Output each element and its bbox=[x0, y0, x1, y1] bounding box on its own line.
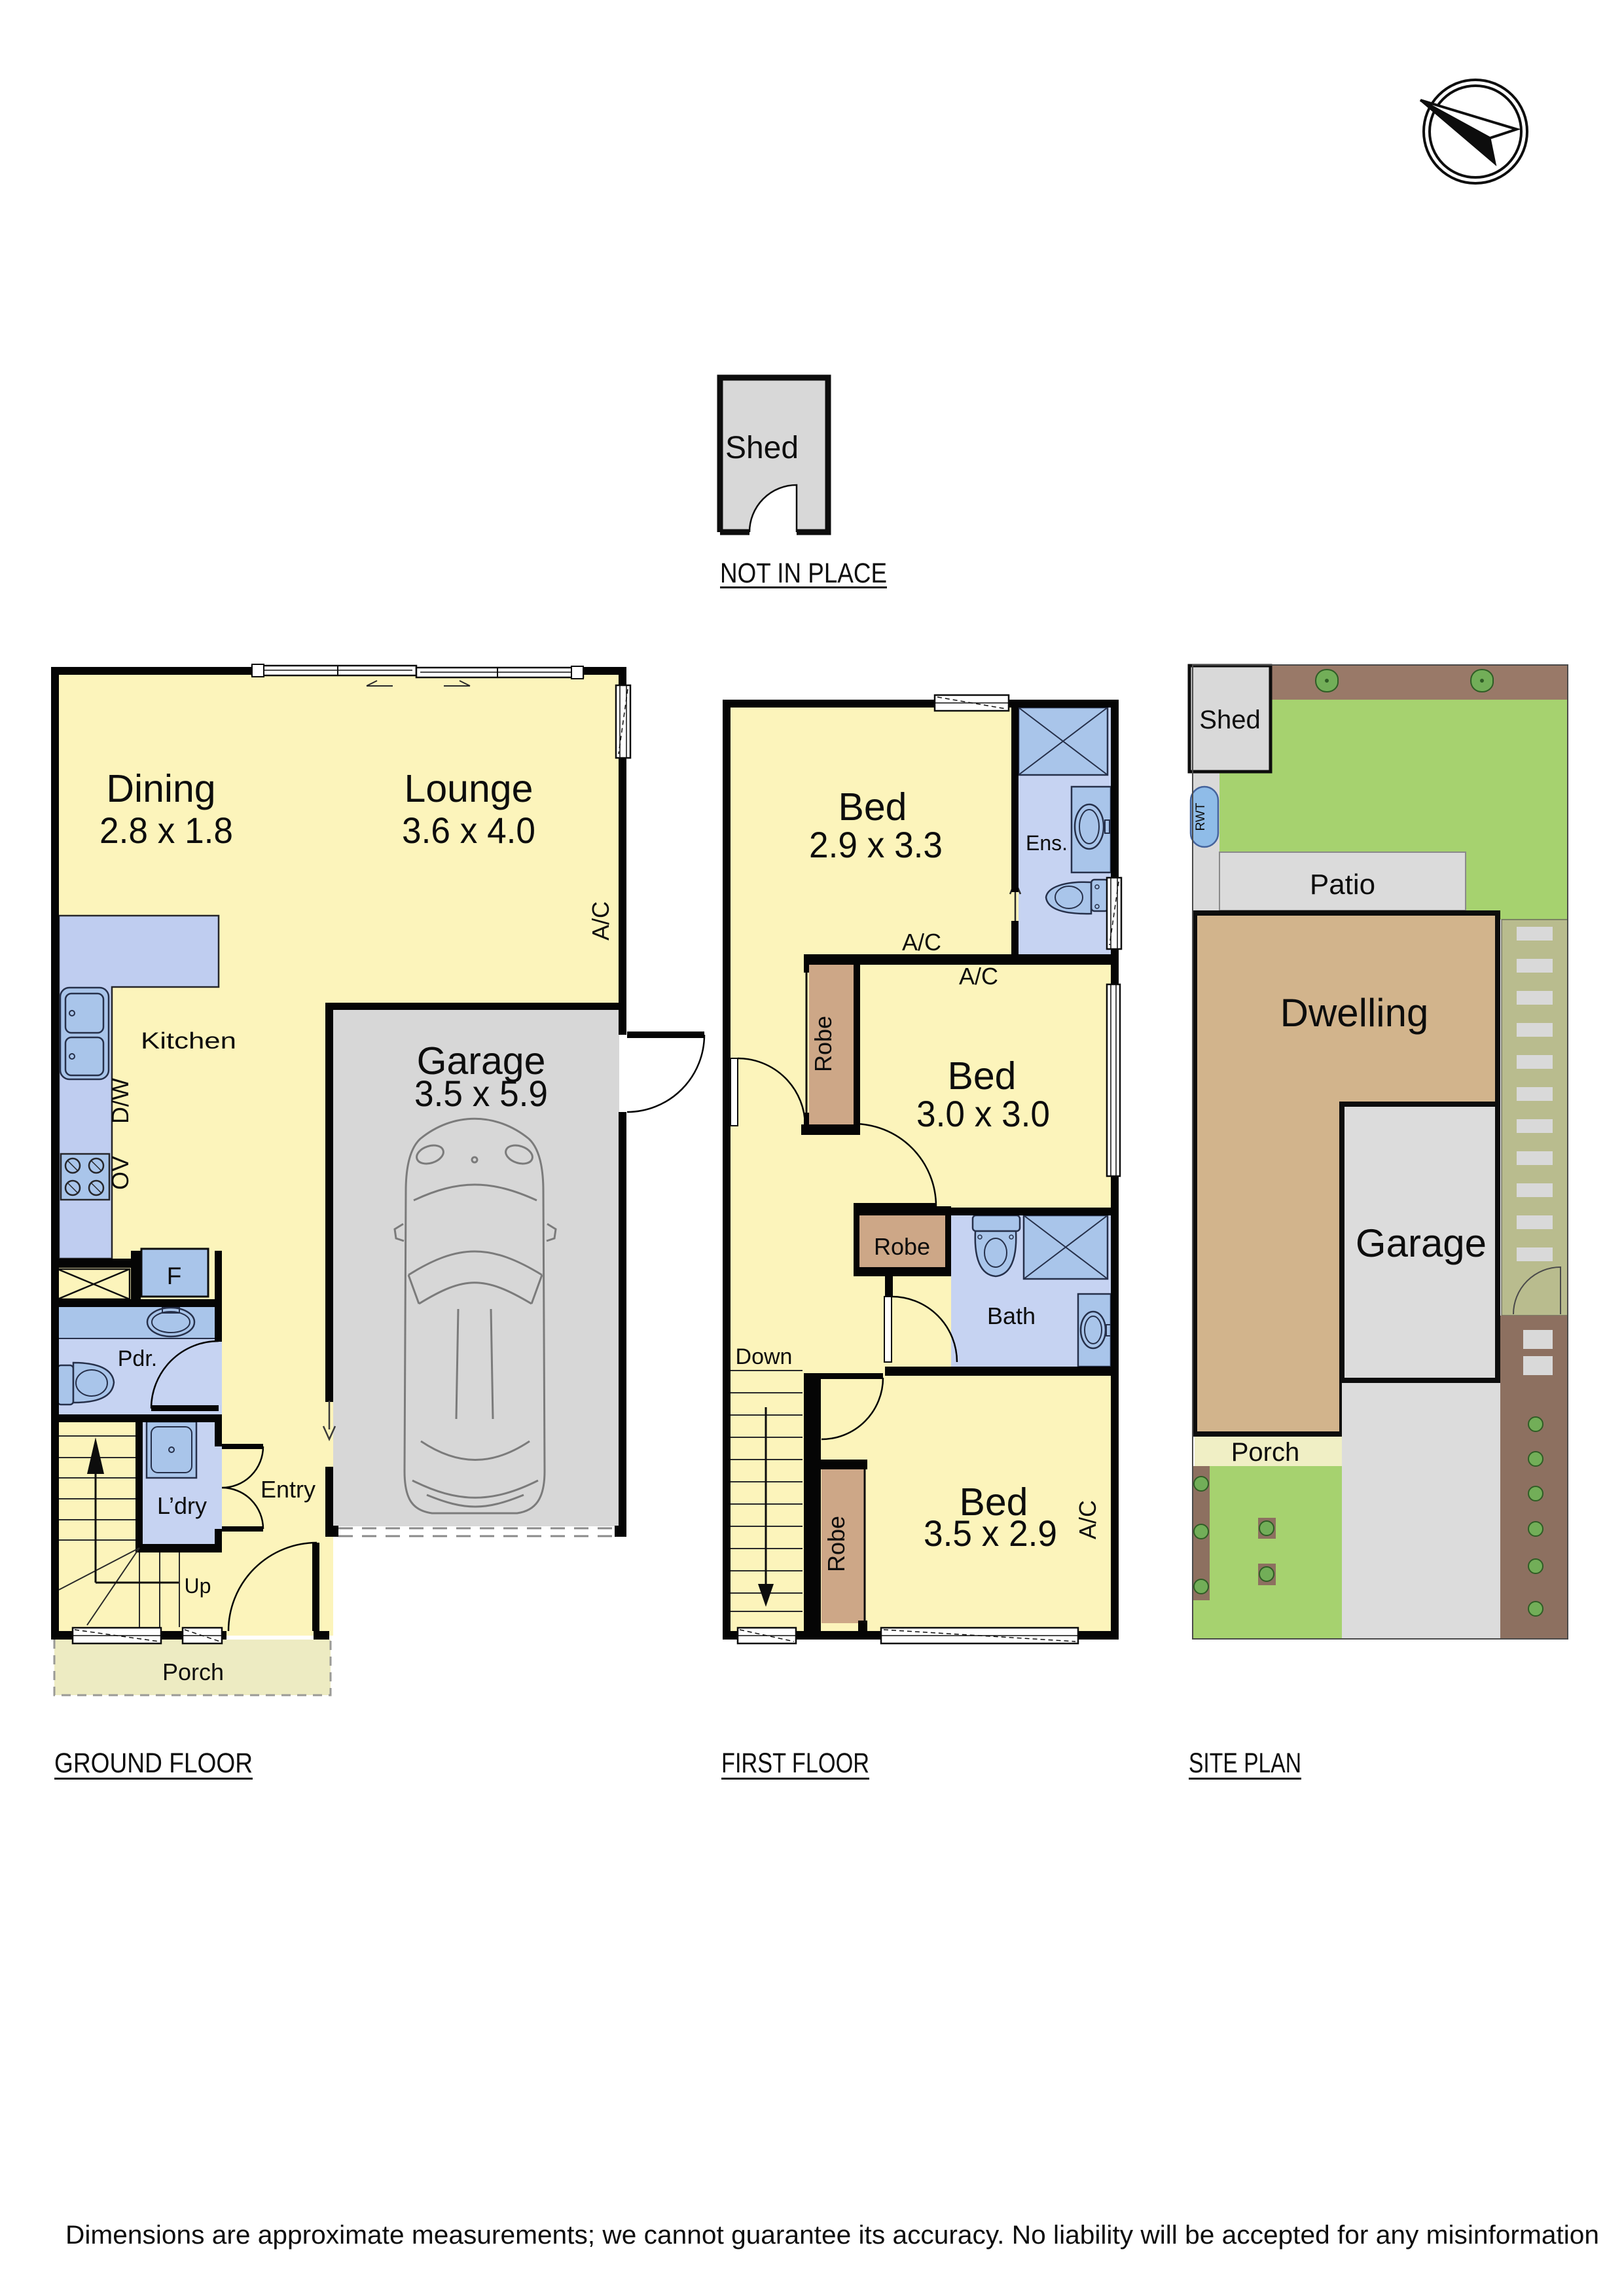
svg-text:Robe: Robe bbox=[823, 1516, 850, 1572]
svg-text:Bed: Bed bbox=[948, 1054, 1017, 1098]
svg-text:3.5 x 2.9: 3.5 x 2.9 bbox=[924, 1513, 1057, 1554]
svg-text:D/W: D/W bbox=[107, 1078, 134, 1124]
svg-text:NOT IN PLACE: NOT IN PLACE bbox=[720, 558, 887, 589]
svg-text:Shed: Shed bbox=[725, 431, 799, 465]
svg-text:Down: Down bbox=[736, 1344, 793, 1369]
svg-text:A/C: A/C bbox=[1074, 1500, 1101, 1539]
svg-text:SITE PLAN: SITE PLAN bbox=[1189, 1748, 1301, 1779]
svg-text:Dwelling: Dwelling bbox=[1280, 991, 1429, 1035]
svg-text:Bath: Bath bbox=[987, 1302, 1036, 1329]
svg-text:2.9 x 3.3: 2.9 x 3.3 bbox=[809, 824, 943, 865]
svg-text:Ens.: Ens. bbox=[1026, 831, 1068, 855]
svg-text:F: F bbox=[167, 1263, 182, 1289]
svg-text:Garage: Garage bbox=[1356, 1221, 1487, 1265]
svg-text:Pdr.: Pdr. bbox=[118, 1346, 157, 1371]
svg-text:3.6 x 4.0: 3.6 x 4.0 bbox=[402, 810, 535, 851]
svg-text:A/C: A/C bbox=[587, 901, 614, 941]
svg-text:3.0 x 3.0: 3.0 x 3.0 bbox=[916, 1093, 1050, 1134]
svg-text:Shed: Shed bbox=[1199, 706, 1260, 734]
svg-text:Patio: Patio bbox=[1310, 869, 1375, 901]
svg-text:Entry: Entry bbox=[261, 1476, 316, 1503]
svg-text:A/C: A/C bbox=[959, 963, 998, 990]
svg-text:Porch: Porch bbox=[162, 1659, 224, 1685]
svg-text:Kitchen: Kitchen bbox=[141, 1028, 236, 1054]
svg-text:Robe: Robe bbox=[810, 1016, 837, 1072]
svg-text:A/C: A/C bbox=[902, 929, 941, 956]
svg-text:Dining: Dining bbox=[106, 767, 215, 810]
svg-text:GROUND FLOOR: GROUND FLOOR bbox=[54, 1748, 253, 1779]
svg-text:Up: Up bbox=[185, 1574, 211, 1598]
svg-text:RWT: RWT bbox=[1194, 802, 1208, 831]
svg-text:Lounge: Lounge bbox=[405, 767, 533, 810]
svg-text:Porch: Porch bbox=[1231, 1438, 1300, 1467]
svg-text:2.8 x 1.8: 2.8 x 1.8 bbox=[99, 810, 233, 851]
svg-text:L’dry: L’dry bbox=[157, 1492, 207, 1519]
svg-text:Dimensions are approximate mea: Dimensions are approximate measurements;… bbox=[65, 2221, 1599, 2250]
svg-text:3.5 x 5.9: 3.5 x 5.9 bbox=[414, 1073, 548, 1114]
svg-text:Bed: Bed bbox=[839, 785, 907, 829]
svg-text:FIRST FLOOR: FIRST FLOOR bbox=[721, 1748, 869, 1779]
svg-text:OV: OV bbox=[107, 1156, 134, 1190]
svg-text:Robe: Robe bbox=[874, 1233, 930, 1260]
